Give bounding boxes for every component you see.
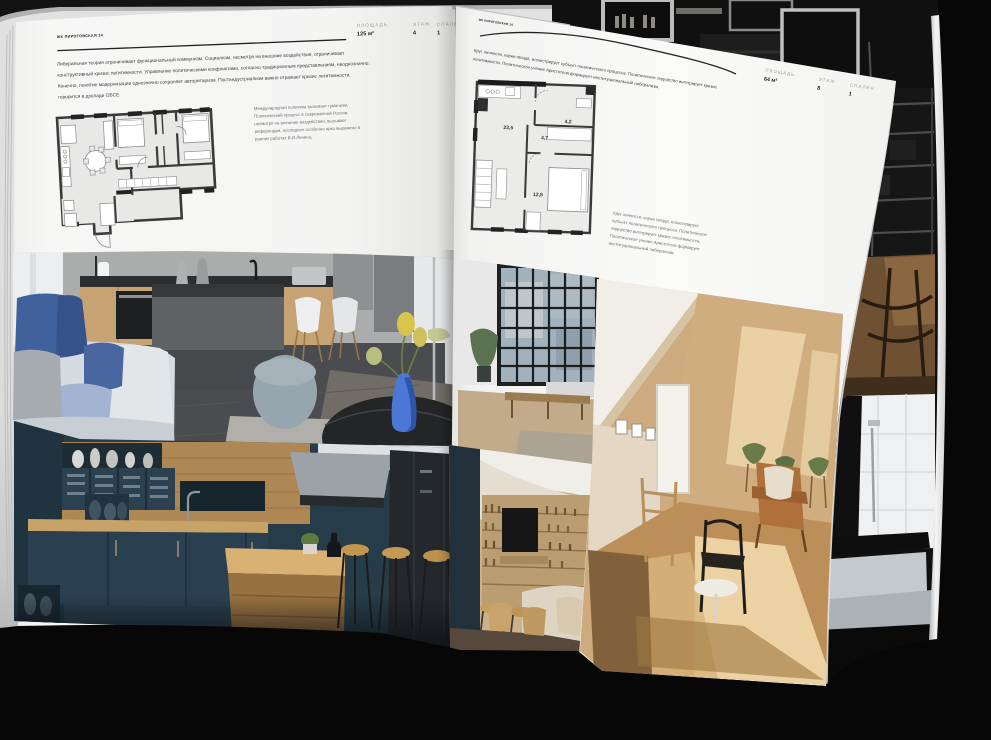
svg-text:4,7: 4,7 <box>541 135 548 141</box>
svg-text:4,2: 4,2 <box>565 119 572 125</box>
svg-text:23,5: 23,5 <box>503 125 513 131</box>
svg-text:ЭТАЖ: ЭТАЖ <box>413 21 431 27</box>
svg-text:125 м²: 125 м² <box>357 30 374 38</box>
svg-text:12,8: 12,8 <box>533 192 543 198</box>
